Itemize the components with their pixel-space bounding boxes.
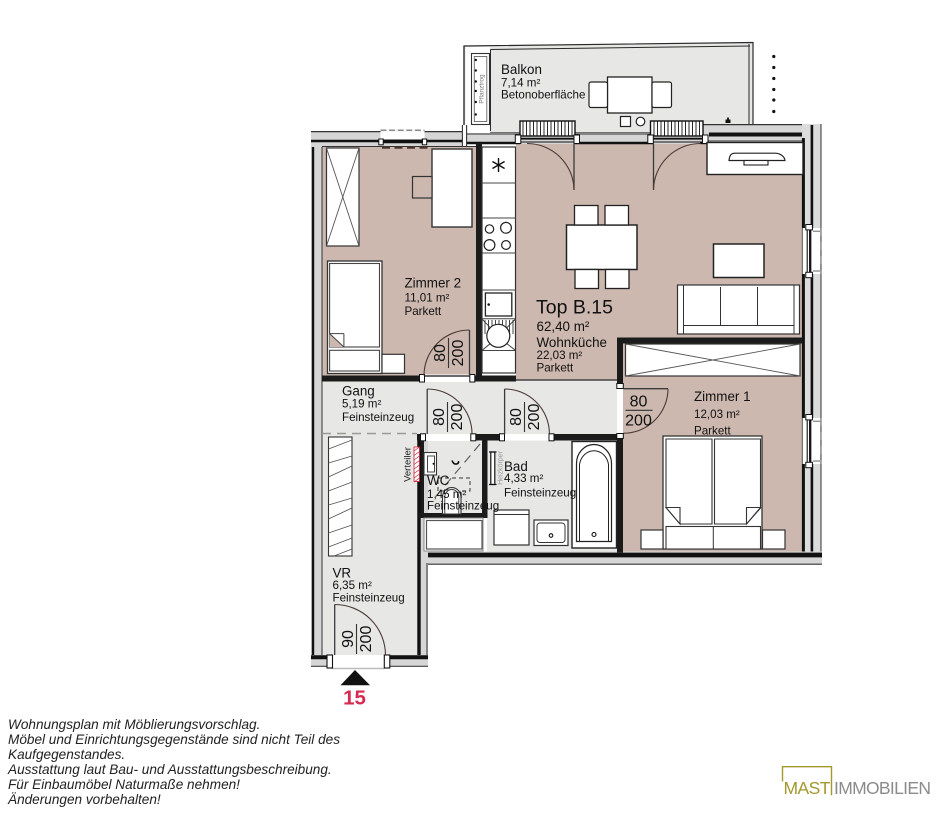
svg-text:Feinsteinzeug: Feinsteinzeug: [333, 592, 405, 605]
svg-text:Ausstattung laut Bau- und Auss: Ausstattung laut Bau- und Ausstattungsbe…: [7, 762, 332, 777]
svg-text:Pflanztrog: Pflanztrog: [479, 74, 486, 104]
svg-text:Top B.15: Top B.15: [536, 297, 613, 319]
svg-text:5,19 m²: 5,19 m²: [342, 398, 381, 411]
svg-text:Feinsteinzeug: Feinsteinzeug: [342, 411, 414, 424]
svg-text:Balkon: Balkon: [501, 62, 542, 77]
svg-text:Betonoberfläche: Betonoberfläche: [501, 89, 585, 102]
svg-text:15: 15: [343, 687, 366, 710]
svg-text:Gang: Gang: [342, 384, 375, 399]
svg-text:200: 200: [625, 413, 652, 430]
svg-text:Änderungen vorbehalten!: Änderungen vorbehalten!: [7, 792, 161, 807]
svg-text:MAST: MAST: [784, 778, 831, 798]
svg-text:Für Einbaumöbel Naturmaße nehm: Für Einbaumöbel Naturmaße nehmen!: [8, 777, 240, 792]
svg-text:WC: WC: [427, 473, 450, 488]
svg-text:Möbel und Einrichtungsgegenstä: Möbel und Einrichtungsgegenstände sind n…: [8, 732, 340, 747]
svg-text:90: 90: [340, 630, 357, 648]
svg-text:80: 80: [630, 394, 648, 411]
svg-text:Parkett: Parkett: [694, 425, 732, 438]
svg-text:Kaufgegenstandes.: Kaufgegenstandes.: [8, 747, 125, 762]
svg-text:200: 200: [526, 404, 543, 431]
svg-text:200: 200: [358, 626, 375, 653]
svg-text:200: 200: [449, 404, 466, 431]
svg-text:11,01 m²: 11,01 m²: [405, 292, 450, 305]
svg-text:Parkett: Parkett: [405, 305, 443, 318]
svg-text:80: 80: [432, 344, 449, 362]
svg-text:4,33 m²: 4,33 m²: [504, 472, 543, 485]
svg-text:IMMOBILIEN: IMMOBILIEN: [834, 778, 931, 798]
svg-text:200: 200: [450, 340, 467, 367]
svg-text:Feinsteinzeug: Feinsteinzeug: [504, 487, 576, 500]
svg-text:Verteiler: Verteiler: [403, 447, 414, 482]
svg-text:62,40 m²: 62,40 m²: [537, 319, 590, 334]
svg-text:Wohnungsplan mit Möblierungsvo: Wohnungsplan mit Möblierungsvorschlag.: [8, 717, 260, 732]
svg-text:12,03 m²: 12,03 m²: [694, 408, 740, 421]
svg-text:22,03 m²: 22,03 m²: [537, 349, 583, 362]
svg-text:Feinsteinzeug: Feinsteinzeug: [427, 500, 499, 513]
svg-text:80: 80: [431, 408, 448, 426]
svg-text:Zimmer 1: Zimmer 1: [694, 389, 751, 404]
svg-text:80: 80: [508, 408, 525, 426]
svg-text:6,35 m²: 6,35 m²: [333, 579, 372, 592]
svg-text:Zimmer 2: Zimmer 2: [405, 276, 462, 291]
svg-text:Parkett: Parkett: [537, 362, 575, 375]
svg-text:Wohnküche: Wohnküche: [537, 335, 607, 350]
